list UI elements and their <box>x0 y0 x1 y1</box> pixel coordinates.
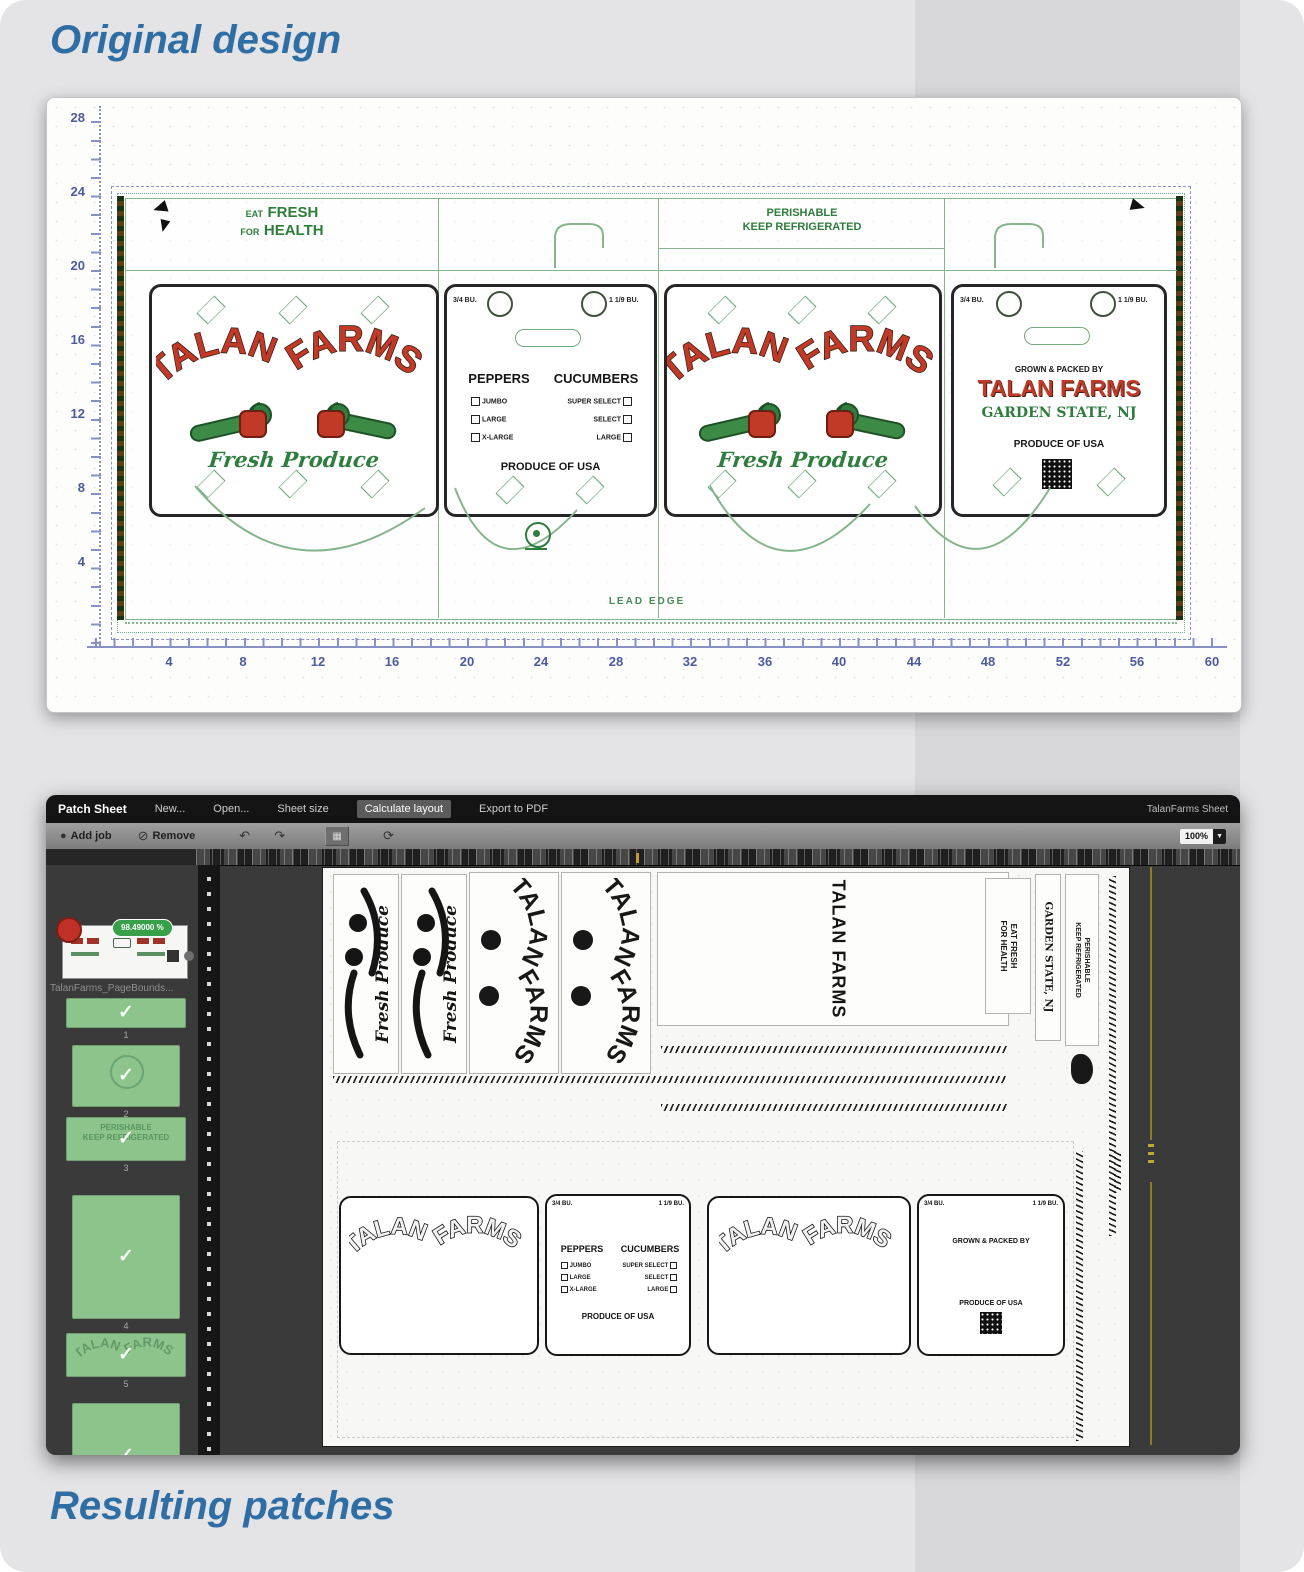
patch-list-item[interactable]: TALAN FARMS ✓ <box>66 1333 186 1377</box>
patch-sheet-window: Patch Sheet New... Open... Sheet size Ca… <box>46 795 1240 1455</box>
ruler-label: 44 <box>896 654 932 669</box>
vent-hole <box>487 291 513 317</box>
check-icon: ✓ <box>118 1343 134 1366</box>
handle-cutout <box>985 216 1047 272</box>
ruler-label: 24 <box>51 184 85 199</box>
brand-arch-bw: TALAN FARMS <box>349 1212 525 1269</box>
svg-text:TALAN: TALAN <box>349 1213 431 1259</box>
design-viewer-panel: 28 24 20 16 12 8 4 4 8 12 16 20 24 28 32… <box>46 97 1242 713</box>
svg-text:TALAN: TALAN <box>667 319 793 390</box>
logo-blob-art <box>1071 1054 1093 1084</box>
flap-text: EAT <box>246 209 263 219</box>
rotated-text: PERISHABLEKEEP REFRIGERATED <box>1073 922 1091 998</box>
eat-fresh-flap: EAT FRESH FOR HEALTH <box>147 204 417 240</box>
ruler-label: 4 <box>151 654 187 669</box>
origin-text: PRODUCE OF USA <box>954 439 1164 450</box>
svg-text:TALAN: TALAN <box>597 878 645 971</box>
patch-garden-state[interactable]: GARDEN STATE, NJ <box>1035 874 1061 1041</box>
rotated-text: EAT FRESHFOR HEALTH <box>998 921 1018 972</box>
ruler-label: 52 <box>1045 654 1081 669</box>
checkbox-icon <box>623 433 632 442</box>
remove-button[interactable]: Remove <box>153 830 196 842</box>
check-icon: ✓ <box>118 1444 134 1455</box>
svg-text:FARMS: FARMS <box>278 319 428 382</box>
brand-word: TALAN <box>156 319 282 390</box>
checkbox-icon <box>623 415 632 424</box>
certification-logo <box>525 522 551 548</box>
menu-item-calculate-layout[interactable]: Calculate layout <box>357 800 451 818</box>
vertical-ruler-ticks <box>91 110 101 644</box>
brand-word: FARMS <box>278 319 428 382</box>
ruler-label: 40 <box>821 654 857 669</box>
handle-slot <box>515 329 581 347</box>
patch-grade-panel[interactable]: 3/4 BU. 1 1/9 BU. PEPPERS CUCUMBERS JUMB… <box>545 1194 691 1356</box>
error-badge <box>56 917 82 943</box>
ruler-label: 16 <box>51 332 85 347</box>
coverage-badge: 98.49000 % <box>112 919 173 937</box>
pin-icon: ● <box>60 830 67 842</box>
checkbox-icon <box>471 397 480 406</box>
fresh-produce-bw-art: Fresh Produce <box>338 879 394 1069</box>
check-icon: ✓ <box>118 1245 134 1268</box>
refresh-icon[interactable]: ⟳ <box>383 828 394 844</box>
size-text: 1 1/9 BU. <box>659 1201 684 1207</box>
patch-list-item[interactable]: ✓ <box>66 998 186 1028</box>
vent-hole <box>1090 291 1116 317</box>
svg-text:Fresh Produce: Fresh Produce <box>373 905 393 1044</box>
canvas-horizontal-ruler <box>196 849 1240 866</box>
lead-edge-text: LEAD EDGE <box>567 596 727 607</box>
checkbox-icon <box>623 397 632 406</box>
patch-list-item[interactable]: ✓ <box>72 1403 180 1455</box>
patch-brand-logo-rotated[interactable]: TALAN FARMS <box>469 872 559 1074</box>
origin-text: PRODUCE OF USA <box>919 1300 1063 1307</box>
origin-text: PRODUCE OF USA <box>447 461 654 473</box>
patch-brand-logo-rotated[interactable]: TALAN FARMS <box>561 872 651 1074</box>
menu-item-open[interactable]: Open... <box>213 803 249 815</box>
remove-icon: ⊘ <box>138 828 149 844</box>
zoom-control[interactable]: 100% ▼ <box>1180 829 1226 844</box>
flap-text: PERISHABLE <box>667 206 937 220</box>
flap-text: KEEP REFRIGERATED <box>667 220 937 234</box>
patch-fresh-produce[interactable]: Fresh Produce <box>401 874 467 1074</box>
brand-name-text: TALAN FARMS <box>954 375 1164 402</box>
job-filename: TalanFarms_PageBounds... <box>50 983 196 994</box>
patch-brand-panel[interactable]: TALAN FARMS <box>339 1196 539 1355</box>
size-text: 1 1/9 BU. <box>1033 1201 1058 1207</box>
patch-eat-fresh[interactable]: EAT FRESHFOR HEALTH <box>985 878 1031 1014</box>
zigzag-strip <box>661 1104 1007 1111</box>
bottom-section-title: Resulting patches <box>50 1484 395 1529</box>
grown-by-text: GROWN & PACKED BY <box>919 1238 1063 1245</box>
svg-text:FARMS: FARMS <box>789 319 939 382</box>
ruler-label: 32 <box>672 654 708 669</box>
check-icon: ✓ <box>118 1001 134 1024</box>
brand-arch-art: TALAN FARMS <box>667 319 939 407</box>
flap-text: FOR <box>240 227 259 237</box>
ruler-label: 20 <box>449 654 485 669</box>
size-text: 1 1/9 BU. <box>609 297 639 304</box>
patch-perishable[interactable]: PERISHABLEKEEP REFRIGERATED <box>1065 874 1099 1046</box>
grade-label: LARGE <box>482 416 507 423</box>
brand-arch-art: TALAN FARMS <box>156 319 428 407</box>
document-name: TalanFarms Sheet <box>1147 804 1228 815</box>
left-knife-edge <box>117 196 124 620</box>
lead-edge-perforation <box>125 622 1177 624</box>
perishable-flap: PERISHABLE KEEP REFRIGERATED <box>667 206 937 234</box>
page: Original design 28 24 20 16 12 8 4 4 8 1… <box>0 0 1304 1572</box>
svg-text:Fresh Produce: Fresh Produce <box>441 905 461 1044</box>
grade-label: LARGE <box>597 434 622 441</box>
fresh-produce-bw-art: Fresh Produce <box>406 879 462 1069</box>
sheet-canvas[interactable]: Fresh Produce Fresh Produce TALAN FARMS <box>322 867 1130 1447</box>
patch-brand-text-panel[interactable]: TALAN FARMS <box>657 872 1009 1026</box>
ruler-label: 48 <box>970 654 1006 669</box>
patch-brand-panel[interactable]: TALAN FARMS <box>707 1196 911 1355</box>
patch-list-item[interactable]: PERISHABLEKEEP REFRIGERATED ✓ <box>66 1117 186 1161</box>
ruler-label: 28 <box>51 110 85 125</box>
flap-crease <box>658 248 944 249</box>
undo-icon[interactable]: ↶ <box>239 828 250 844</box>
size-text: 3/4 BU. <box>453 297 477 304</box>
svg-text:FARMS: FARMS <box>600 965 645 1068</box>
flap-text: HEALTH <box>264 222 324 239</box>
svg-text:FARMS: FARMS <box>508 965 553 1068</box>
grown-by-text: GROWN & PACKED BY <box>954 365 1164 374</box>
menu-bar: Patch Sheet New... Open... Sheet size Ca… <box>46 795 1240 823</box>
svg-text:TALAN: TALAN <box>719 1213 801 1259</box>
chevron-down-icon: ▼ <box>1213 829 1226 844</box>
checkbox-icon <box>471 415 480 424</box>
certification-logo-text <box>525 548 547 550</box>
right-knife-edge <box>1176 196 1183 620</box>
grade-label: X-LARGE <box>482 434 514 441</box>
menu-item-new[interactable]: New... <box>155 803 186 815</box>
svg-text:TALAN: TALAN <box>156 319 282 390</box>
dimension-label <box>1145 1140 1157 1182</box>
size-text: 3/4 BU. <box>552 1201 572 1207</box>
checkbox-icon <box>471 433 480 442</box>
ruler-marker <box>636 853 639 863</box>
ruler-label: 24 <box>523 654 559 669</box>
top-section-title: Original design <box>50 18 341 63</box>
zigzag-strip-vertical <box>1114 1151 1121 1193</box>
ruler-corner <box>46 849 196 866</box>
handle-cutout <box>545 216 607 272</box>
vegetables-art <box>188 399 400 451</box>
check-icon: ✓ <box>118 1127 134 1150</box>
rotated-text: GARDEN STATE, NJ <box>1043 902 1054 1013</box>
grade-label: SELECT <box>593 416 621 423</box>
brand-bw-art: TALAN FARMS <box>475 878 553 1068</box>
ruler-label: 28 <box>598 654 634 669</box>
brand-word: TALAN <box>667 319 793 390</box>
redo-icon[interactable]: ↷ <box>274 828 285 844</box>
origin-text: PRODUCE OF USA <box>547 1312 689 1321</box>
canvas-vertical-ruler <box>198 865 220 1455</box>
vent-hole <box>581 291 607 317</box>
vent-hole <box>996 291 1022 317</box>
patch-number: 3 <box>123 1163 128 1173</box>
grade-heading: PEPPERS <box>551 1244 613 1254</box>
qr-code <box>980 1312 1002 1334</box>
size-text: 1 1/9 BU. <box>1118 297 1148 304</box>
brand-word: FARMS <box>789 319 939 382</box>
info-icon[interactable] <box>184 951 194 961</box>
patch-address-panel[interactable]: 3/4 BU. 1 1/9 BU. GROWN & PACKED BY PROD… <box>917 1194 1065 1356</box>
svg-text:TALAN: TALAN <box>76 1335 123 1361</box>
ruler-label: 8 <box>225 654 261 669</box>
zoom-value: 100% <box>1180 831 1213 841</box>
check-icon: ✓ <box>118 1064 134 1087</box>
grade-heading: CUCUMBERS <box>545 371 647 386</box>
patch-list-item[interactable]: ✓ <box>72 1045 180 1107</box>
ruler-label: 12 <box>51 406 85 421</box>
app-title: Patch Sheet <box>58 802 127 816</box>
patch-number: 4 <box>123 1321 128 1331</box>
grade-label: JUMBO <box>482 398 507 405</box>
menu-item-export-pdf[interactable]: Export to PDF <box>479 803 548 815</box>
zigzag-strip-vertical <box>1076 1151 1083 1441</box>
ruler-label: 12 <box>300 654 336 669</box>
ruler-label: 60 <box>1194 654 1230 669</box>
svg-text:FARMS: FARMS <box>428 1212 525 1253</box>
patch-list-item[interactable]: ✓ <box>72 1195 180 1319</box>
ruler-label: 8 <box>51 480 85 495</box>
brand-arch-bw: TALAN FARMS <box>719 1212 895 1269</box>
add-job-button[interactable]: Add job <box>71 830 112 842</box>
svg-text:FARMS: FARMS <box>798 1212 895 1253</box>
size-text: 3/4 BU. <box>960 297 984 304</box>
brand-bw-art: TALAN FARMS <box>567 878 645 1068</box>
state-text: GARDEN STATE, NJ <box>954 405 1164 421</box>
handle-slot <box>1024 327 1090 345</box>
zigzag-strip <box>333 1076 1007 1083</box>
ruler-label: 4 <box>51 554 85 569</box>
menu-item-sheet-size[interactable]: Sheet size <box>277 803 328 815</box>
patch-fresh-produce[interactable]: Fresh Produce <box>333 874 399 1074</box>
vegetables-art <box>697 399 909 451</box>
toolbar: ● Add job ⊘ Remove ↶ ↷ ▦ ⟳ 100% ▼ <box>46 823 1240 849</box>
svg-text:TALAN: TALAN <box>505 878 553 971</box>
grade-heading: PEPPERS <box>457 371 541 386</box>
patch-number: 1 <box>123 1030 128 1040</box>
ruler-label: 16 <box>374 654 410 669</box>
grade-label: SUPER SELECT <box>567 398 621 405</box>
layout-grid-button[interactable]: ▦ <box>325 826 349 846</box>
flap-text: FRESH <box>267 204 318 221</box>
size-text: 3/4 BU. <box>924 1201 944 1207</box>
vertical-brand-text: TALAN FARMS <box>828 880 849 1019</box>
zigzag-strip <box>661 1046 1007 1053</box>
grade-heading: CUCUMBERS <box>615 1244 685 1254</box>
ruler-label: 56 <box>1119 654 1155 669</box>
brand-script: Fresh Produce <box>151 447 438 472</box>
patch-number: 5 <box>123 1379 128 1389</box>
ruler-label: 20 <box>51 258 85 273</box>
ruler-label: 36 <box>747 654 783 669</box>
jobs-sidebar: 98.49000 % TalanFarms_PageBounds... ✓ 1 … <box>46 865 198 1455</box>
brand-script: Fresh Produce <box>666 447 941 472</box>
